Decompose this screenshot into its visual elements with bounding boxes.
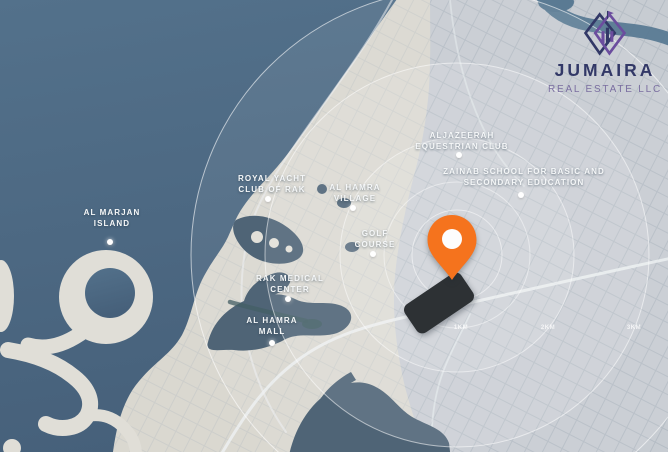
location-pin[interactable] [424, 212, 480, 282]
map-label-golf-course: GOLF COURSE [346, 229, 404, 251]
poi-dot-rak-medical-center [285, 296, 291, 302]
poi-dot-al-hamra-mall [269, 340, 275, 346]
map-label-zainab-school: ZAINAB SCHOOL FOR BASIC AND SECONDARY ED… [435, 167, 613, 189]
brand-logo: JUMAIRA REAL ESTATE LLC [540, 8, 668, 95]
brand-logo-icon [582, 8, 628, 58]
poi-dot-aljazeerah-equestrian-club [456, 152, 462, 158]
brand-name: JUMAIRA [540, 60, 668, 81]
poi-dot-zainab-school [518, 192, 524, 198]
poi-dot-royal-yacht-club [265, 196, 271, 202]
brand-subtitle: REAL ESTATE LLC [540, 84, 668, 95]
map-label-royal-yacht-club: ROYAL YACHT CLUB OF RAK [226, 174, 318, 196]
map-label-al-hamra-village: AL HAMRA VILLAGE [319, 183, 391, 205]
map-label-aljazeerah-equestrian-club: ALJAZEERAH EQUESTRIAN CLUB [405, 131, 520, 153]
poi-dot-al-hamra-village [350, 205, 356, 211]
poi-dot-al-marjan-island [107, 239, 113, 245]
ring-label-1km: 1KM [454, 325, 468, 331]
map-label-al-hamra-mall: AL HAMRA MALL [236, 316, 308, 338]
ring-label-2km: 2KM [541, 325, 555, 331]
ring-label-3km: 3KM [627, 325, 641, 331]
map-label-al-marjan-island: AL MARJAN ISLAND [76, 208, 148, 230]
map-screenshot: { "brand": { "name": "JUMAIRA", "subtitl… [0, 0, 668, 452]
map-label-rak-medical-center: RAK MEDICAL CENTER [249, 274, 331, 296]
poi-dot-golf-course [370, 251, 376, 257]
location-pin-icon [424, 212, 480, 282]
